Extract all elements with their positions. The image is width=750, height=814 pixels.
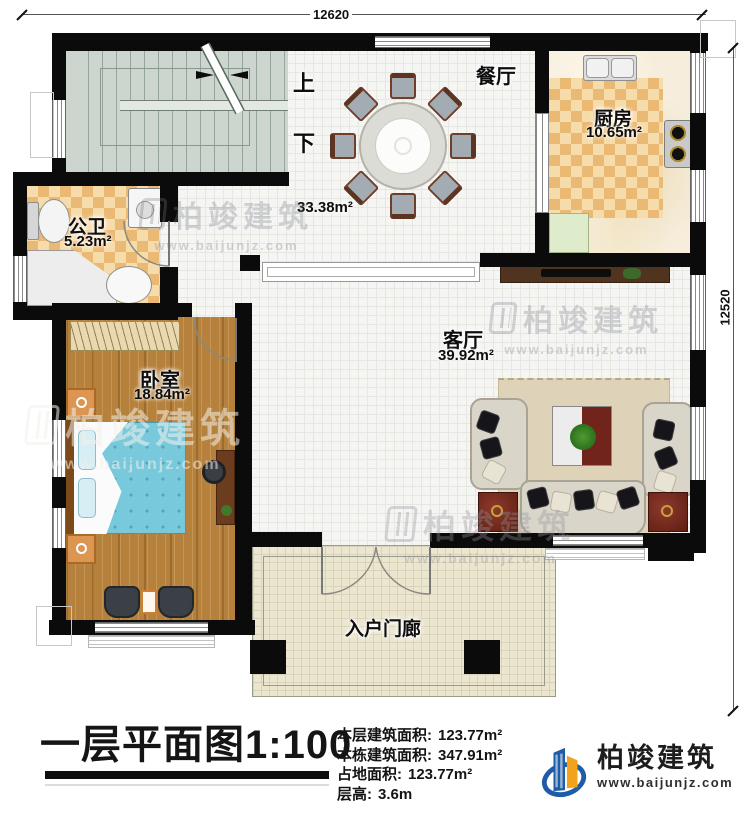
title-underline-thin <box>45 784 329 786</box>
dining-table-center <box>394 137 412 155</box>
wall-living-bottom-left <box>252 532 322 547</box>
window-living-bottom <box>553 535 643 546</box>
kitchen-sink <box>583 55 637 81</box>
exterior-outline <box>700 20 736 58</box>
stat-label: 层高: <box>337 786 372 803</box>
stat-row: 本层建筑面积:123.77m² <box>337 726 502 746</box>
wall-kitchen-divider-upper <box>535 51 549 113</box>
desk-chair <box>202 460 226 484</box>
window-bedroom-bottom <box>95 622 208 633</box>
dimension-tick <box>17 10 27 20</box>
dimension-top-value: 12620 <box>310 7 352 22</box>
wardrobe <box>70 321 180 351</box>
wall-bedroom-right <box>235 317 252 635</box>
plan-title-text: 一层平面图 <box>40 723 245 767</box>
wall-stairs-bottom <box>13 172 289 186</box>
stove <box>664 120 692 168</box>
nightstand-top <box>66 388 96 418</box>
coffee-table <box>552 406 612 466</box>
dining-chair <box>450 133 476 159</box>
wall-kitchen-bottom <box>480 253 696 267</box>
room-area-living: 39.92m² <box>438 347 494 364</box>
company-logo: 柏竣建筑 www.baijunjz.com <box>541 741 733 799</box>
company-name: 柏竣建筑 <box>597 741 733 775</box>
stair-handrail <box>120 100 288 111</box>
window-sill-bedroom <box>88 635 215 648</box>
bedroom-chair-1 <box>104 586 140 618</box>
stat-label: 本层建筑面积: <box>337 727 432 744</box>
side-table-right <box>648 492 688 532</box>
exterior-outline <box>30 92 54 158</box>
window-right-kitchen-1 <box>690 53 706 113</box>
company-logo-text: 柏竣建筑 www.baijunjz.com <box>597 741 733 790</box>
dining-chair <box>330 133 356 159</box>
washing-machine <box>128 188 162 228</box>
floor-plan-page: 餐厅 33.38m² 厨房 10.65m² 公卫 5.23m² 卧室 18.84… <box>0 0 750 814</box>
bed-headboard <box>66 420 74 536</box>
window-right-kitchen-2 <box>690 170 706 222</box>
nightstand-bottom <box>66 534 96 564</box>
sideboard <box>262 262 480 282</box>
stat-label: 占地面积: <box>337 766 402 783</box>
company-logo-icon <box>541 741 589 799</box>
bathroom-sink <box>106 266 152 304</box>
wall-living-corner <box>648 533 694 561</box>
title-underline <box>45 771 329 779</box>
stairs-up-label: 上 <box>293 66 315 98</box>
window-right-living-2 <box>690 407 706 480</box>
porch-column-right <box>464 640 500 674</box>
sofa-pillow <box>573 489 596 512</box>
plan-title: 一层平面图1:100 <box>40 712 352 770</box>
stairs-down-label: 下 <box>293 126 315 158</box>
room-area-kitchen: 10.65m² <box>586 124 642 141</box>
dimension-right-value: 12520 <box>718 285 733 331</box>
dimension-line-top <box>22 14 706 15</box>
bedroom-chair-2 <box>158 586 194 618</box>
window-bedroom-left-2 <box>52 508 66 548</box>
kitchen-checker-floor <box>549 78 663 218</box>
bedroom-side-table <box>141 590 157 614</box>
wall-stub-hall <box>240 255 260 271</box>
window-bedroom-left-1 <box>52 420 66 477</box>
sink-basin-left <box>586 58 609 78</box>
stat-value: 123.77m² <box>438 727 502 744</box>
tv-plant-icon <box>623 268 641 279</box>
stat-row: 层高:3.6m <box>337 785 502 805</box>
dimension-line-right <box>733 48 734 711</box>
window-top-dining <box>375 36 490 48</box>
dining-chair <box>390 193 416 219</box>
nightstand-lamp-icon <box>76 543 87 554</box>
room-label-dining: 餐厅 <box>476 60 516 89</box>
room-label-porch: 入户门廊 <box>345 614 421 641</box>
porch-column-left <box>250 640 286 674</box>
tv <box>541 269 611 277</box>
dining-chair <box>390 73 416 99</box>
stat-label: 本栋建筑面积: <box>337 747 432 764</box>
stat-row: 占地面积:123.77m² <box>337 765 502 785</box>
company-website: www.baijunjz.com <box>597 775 733 790</box>
stat-row: 本栋建筑面积:347.91m² <box>337 746 502 766</box>
sofa-pillow <box>652 418 676 442</box>
exterior-outline <box>36 606 72 646</box>
kitchen-cabinet <box>549 213 589 253</box>
window-left-stairs <box>52 100 66 158</box>
side-table-ornament-icon <box>661 505 673 517</box>
window-right-living-1 <box>690 275 706 350</box>
wall-kitchen-divider-lower <box>535 213 549 253</box>
desk-plant-icon <box>221 505 232 516</box>
wall-bathroom-right-upper <box>160 186 178 222</box>
side-table-left <box>478 492 518 532</box>
tv-cabinet <box>500 265 670 283</box>
bed-pillow-1 <box>78 430 96 470</box>
bed-pillow-2 <box>78 478 96 518</box>
stat-value: 123.77m² <box>408 766 472 783</box>
dining-table <box>359 102 447 190</box>
stat-value: 3.6m <box>378 786 412 803</box>
sofa-pillow <box>549 490 572 513</box>
nightstand-lamp-icon <box>76 397 87 408</box>
room-area-bedroom: 18.84m² <box>134 386 190 403</box>
wall-bedroom-top <box>52 303 192 317</box>
coffee-table-plant-icon <box>570 424 596 450</box>
stat-value: 347.91m² <box>438 747 502 764</box>
kitchen-sliding-door <box>535 113 549 213</box>
room-area-bathroom: 5.23m² <box>64 233 112 250</box>
sink-basin-right <box>611 58 634 78</box>
window-bathroom <box>13 256 27 302</box>
side-table-ornament-icon <box>491 505 503 517</box>
wall-bedroom-top-corner <box>235 303 252 317</box>
area-stats: 本层建筑面积:123.77m² 本栋建筑面积:347.91m² 占地面积:123… <box>337 726 502 804</box>
dimension-tick <box>697 10 707 20</box>
window-sill-living <box>545 548 645 560</box>
room-area-dining: 33.38m² <box>297 199 353 216</box>
